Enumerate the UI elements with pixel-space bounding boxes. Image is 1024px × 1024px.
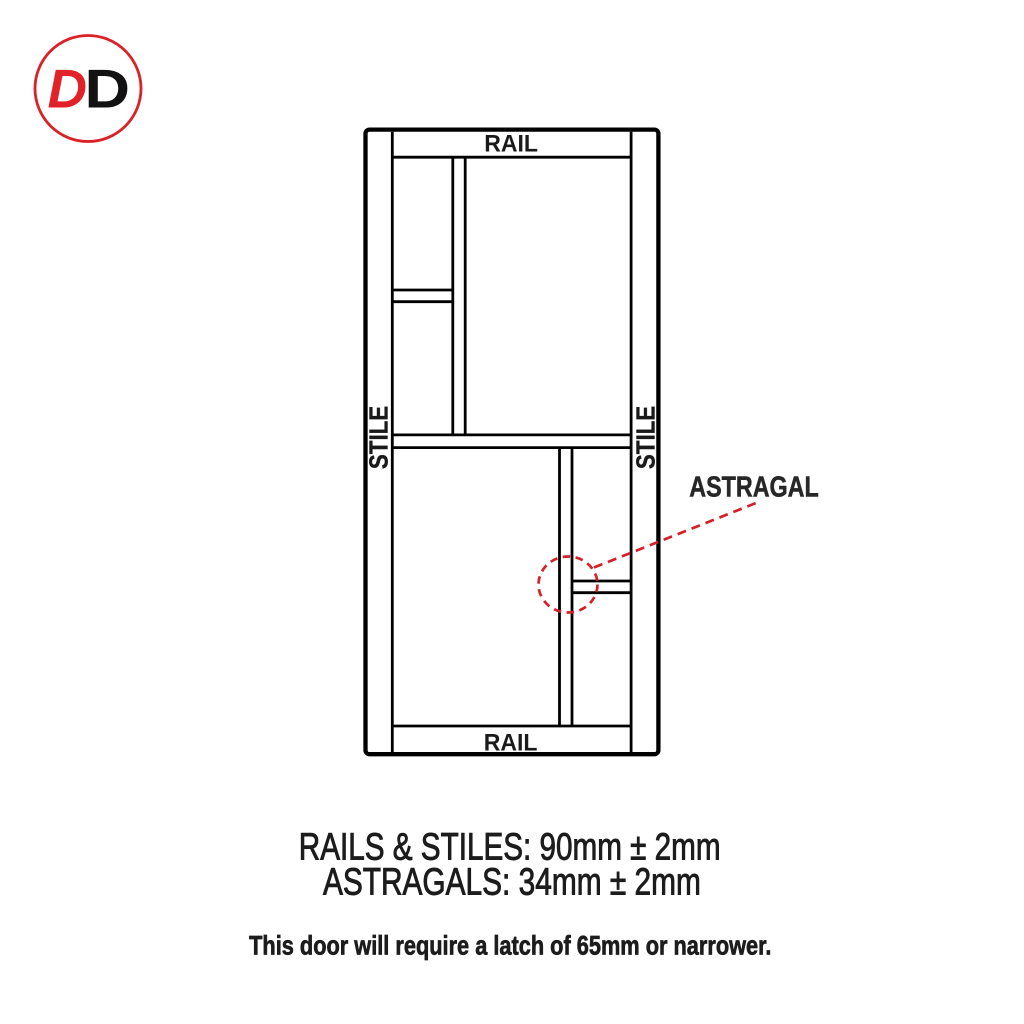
svg-text:STILE: STILE (630, 406, 660, 469)
svg-text:ASTRAGALS: 34mm ± 2mm: ASTRAGALS: 34mm ± 2mm (323, 861, 701, 903)
svg-text:D: D (48, 58, 88, 120)
svg-text:RAIL: RAIL (484, 730, 538, 757)
svg-text:STILE: STILE (363, 406, 393, 469)
svg-text:This door will require a latch: This door will require a latch of 65mm o… (249, 931, 771, 961)
svg-text:ASTRAGAL: ASTRAGAL (689, 472, 819, 504)
svg-text:D: D (85, 58, 131, 120)
svg-text:RAIL: RAIL (484, 130, 538, 157)
